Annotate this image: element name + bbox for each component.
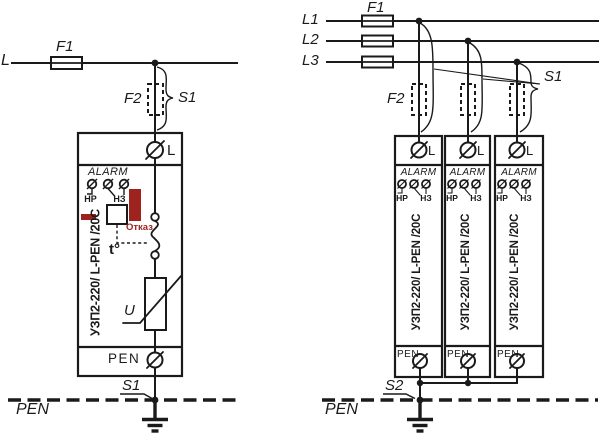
line-l-label: L [1,53,10,70]
line-l1-label: L1 [302,12,319,28]
m2-terminal-l-label: L [477,143,484,158]
m2-model-label: УЗП2-220/ L-PEN /20C [460,193,474,351]
s2-leader [383,394,415,399]
wiring-diagram: L F1 F2 S1 L ALARM НР НЗ Отказ t° УЗП2-2… [0,0,600,434]
m1-alarm-label: ALARM [395,167,442,178]
terminal-pen-label: PEN [108,351,140,366]
line-l3-label: L3 [302,53,319,69]
m3-alarm-label: ALARM [495,167,543,178]
indicator-window [107,205,127,224]
varistor-u-label: U [124,302,135,319]
fuse-f1-label: F1 [56,39,74,55]
m2-contact-no-label: НР [444,193,460,203]
s1-leader-1 [434,69,540,84]
m1-terminal-l-label: L [428,143,435,158]
m2-terminal-pen-label: PEN [447,349,469,360]
pen-bus-right-label: PEN [325,402,358,419]
pen-bus-label: PEN [16,402,49,419]
left-circuit [8,57,237,431]
s1-top-label: S1 [178,90,196,106]
s1-brace-2 [470,43,482,132]
m3-model-label: УЗП2-220/ L-PEN /20C [509,193,523,351]
fuse-f2-right-label: F2 [387,91,405,107]
thermal-disconnect [151,158,159,259]
s1-brace-3 [519,63,538,132]
s1-brace [157,67,173,130]
alarm-label: ALARM [80,166,136,178]
m1-terminal-pen-label: PEN [397,349,419,360]
m3-terminal-pen-label: PEN [497,349,519,360]
s1-bottom-label: S1 [122,378,140,394]
terminal-l-label: L [167,142,175,159]
contact-nc-label: НЗ [111,194,128,204]
s1-right-label: S1 [544,69,562,85]
fail-indicator-bar [129,189,141,221]
line-l2-label: L2 [302,32,319,48]
m1-model-label: УЗП2-220/ L-PEN /20C [411,193,425,351]
fail-label: Отказ [126,222,153,233]
s2-label: S2 [385,378,403,394]
m3-terminal-l-label: L [526,143,533,158]
pen-bus-links [417,368,517,400]
module-model-label: УЗП2-220/ L-PEN /20C [89,198,104,348]
m2-alarm-label: ALARM [445,167,490,178]
m1-contact-no-label: НР [394,193,410,203]
ground-symbol-right [407,400,433,431]
fuse-f1-right-label: F1 [367,0,385,16]
m3-contact-no-label: НР [494,193,510,203]
thermal-label: t° [109,241,120,258]
ground-symbol [142,400,168,431]
fuse-f2-label: F2 [124,91,142,107]
